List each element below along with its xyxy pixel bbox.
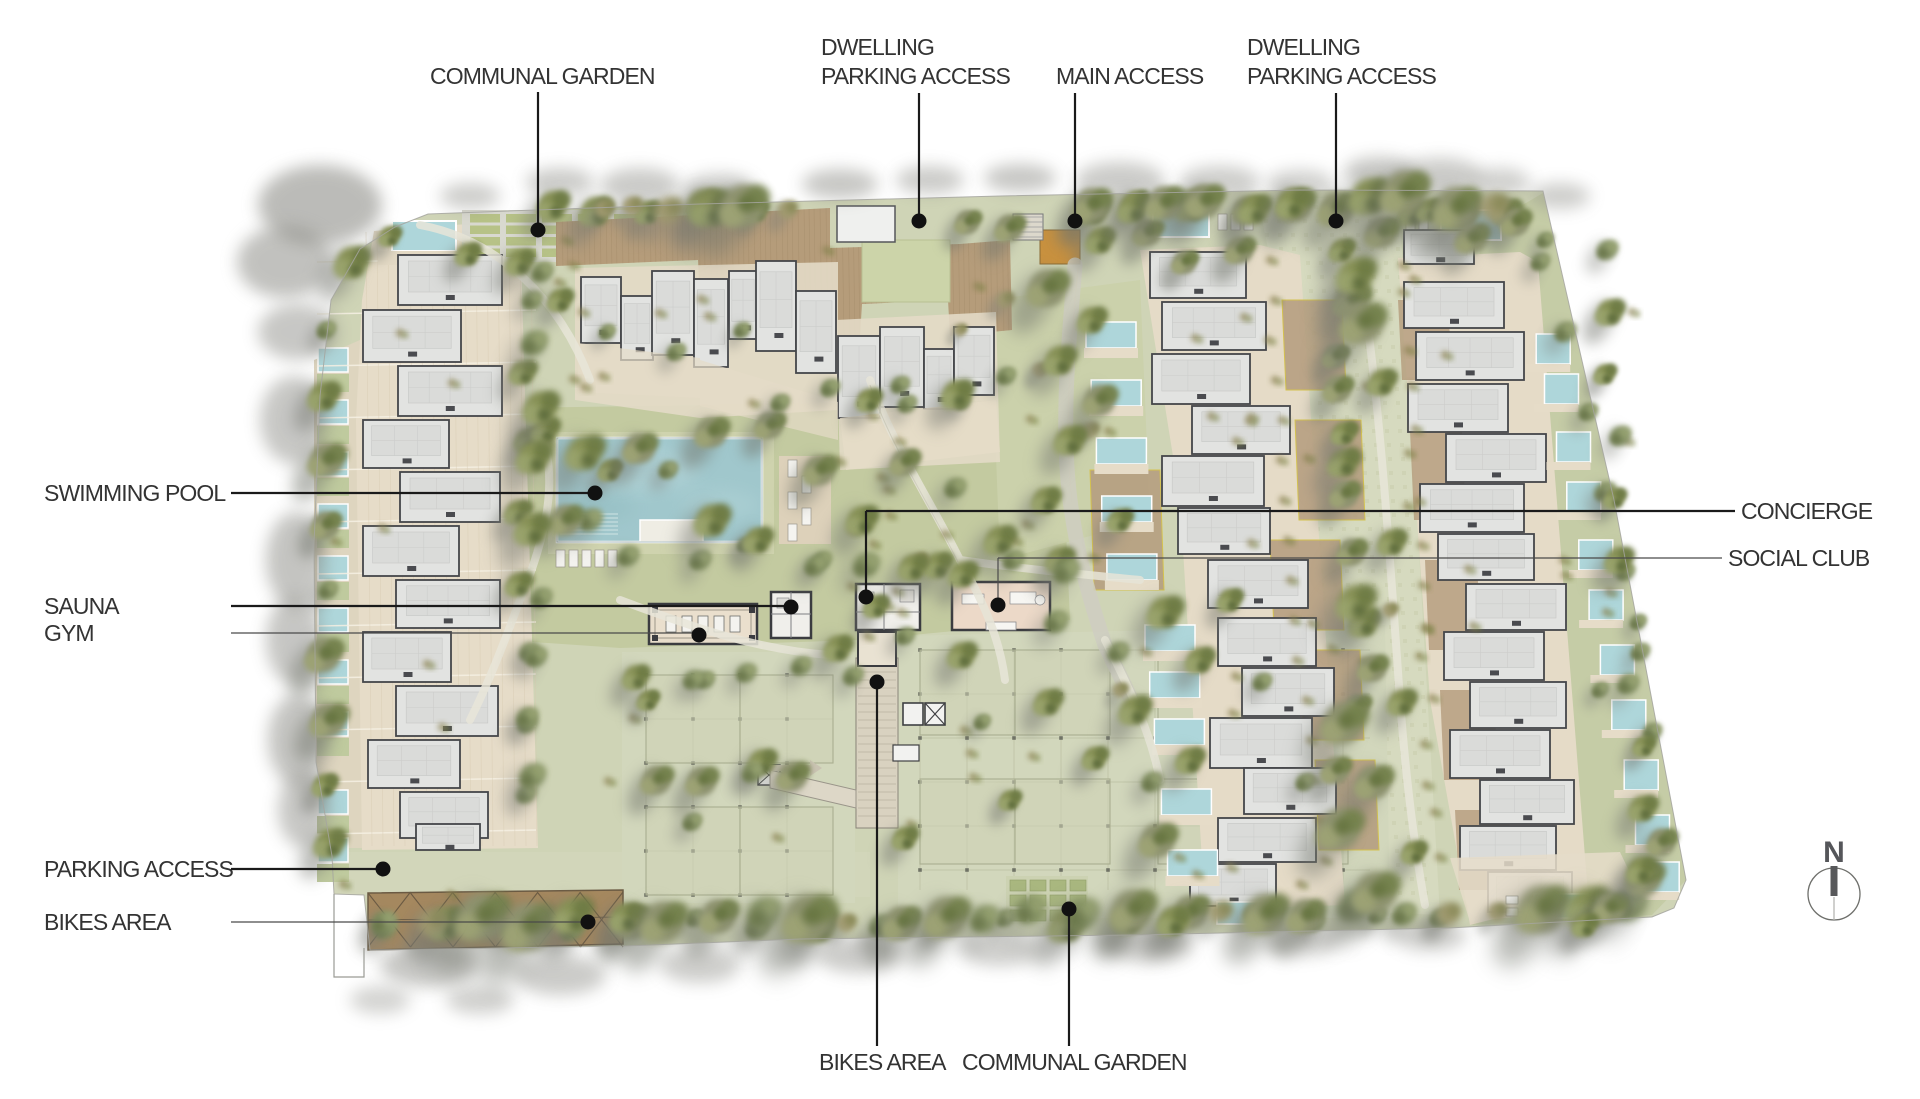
svg-text:PARKING ACCESS: PARKING ACCESS	[1247, 63, 1436, 89]
svg-text:SAUNA: SAUNA	[44, 593, 120, 619]
svg-text:PARKING ACCESS: PARKING ACCESS	[821, 63, 1010, 89]
svg-text:COMMUNAL GARDEN: COMMUNAL GARDEN	[962, 1049, 1187, 1075]
svg-text:SWIMMING POOL: SWIMMING POOL	[44, 480, 226, 506]
svg-text:GYM: GYM	[44, 620, 94, 646]
svg-text:COMMUNAL GARDEN: COMMUNAL GARDEN	[430, 63, 655, 89]
svg-text:SOCIAL CLUB: SOCIAL CLUB	[1728, 545, 1870, 571]
svg-text:PARKING ACCESS: PARKING ACCESS	[44, 856, 233, 882]
svg-text:N: N	[1823, 836, 1845, 869]
svg-text:MAIN ACCESS: MAIN ACCESS	[1056, 63, 1204, 89]
svg-text:BIKES AREA: BIKES AREA	[819, 1049, 947, 1075]
svg-text:DWELLING: DWELLING	[1247, 34, 1360, 60]
svg-text:BIKES AREA: BIKES AREA	[44, 909, 172, 935]
svg-text:DWELLING: DWELLING	[821, 34, 934, 60]
svg-text:CONCIERGE: CONCIERGE	[1741, 498, 1873, 524]
